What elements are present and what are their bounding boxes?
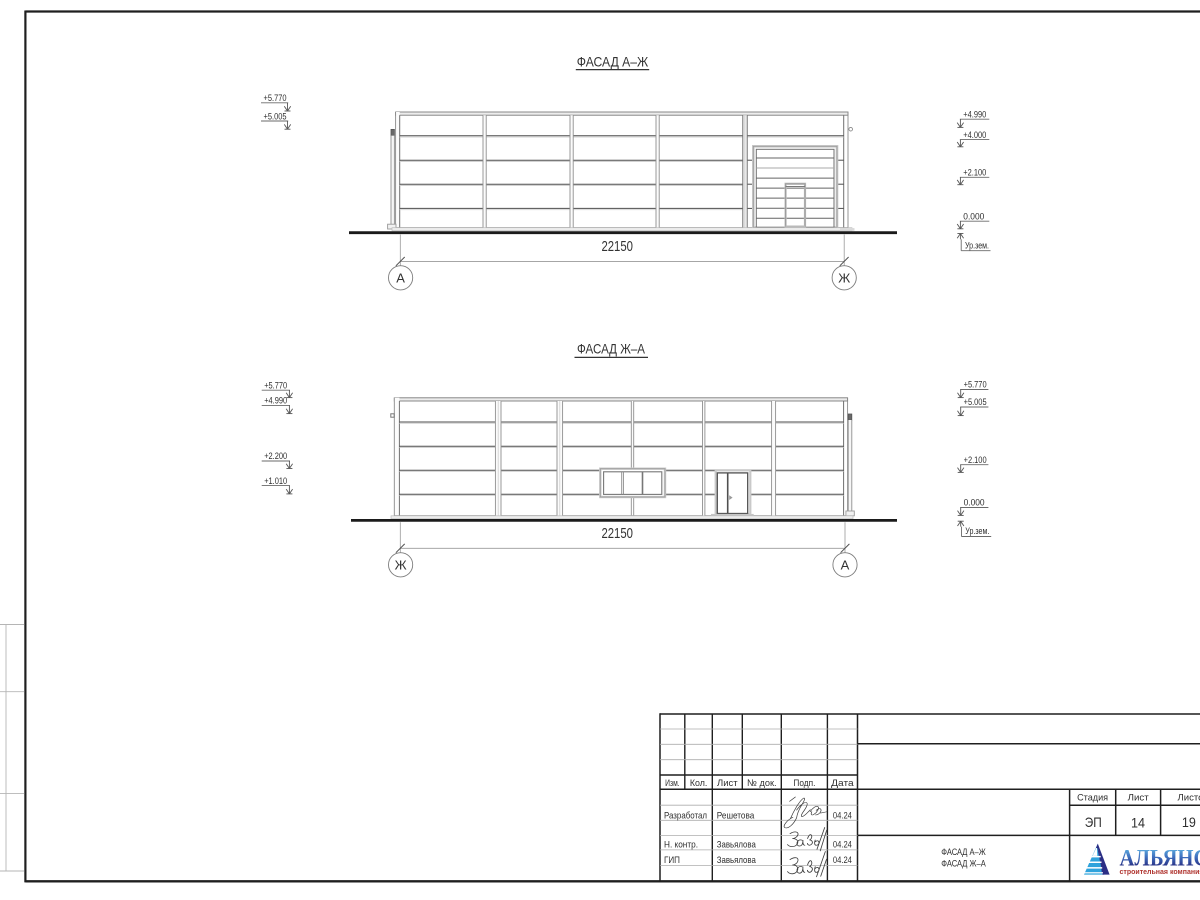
svg-text:+2.100: +2.100 bbox=[964, 455, 987, 465]
svg-text:Решетова: Решетова bbox=[717, 810, 755, 820]
svg-text:+5.005: +5.005 bbox=[964, 397, 987, 407]
svg-text:22150: 22150 bbox=[601, 525, 633, 542]
svg-text:+2.100: +2.100 bbox=[963, 168, 986, 178]
svg-text:Подп.: Подп. bbox=[793, 778, 815, 789]
svg-text:Кол.: Кол. bbox=[690, 778, 708, 789]
svg-text:№ док.: № док. bbox=[747, 778, 777, 789]
svg-text:Лист: Лист bbox=[1128, 793, 1150, 803]
svg-text:+5.770: +5.770 bbox=[264, 381, 287, 391]
svg-text:Завьялова: Завьялова bbox=[717, 855, 757, 865]
svg-text:Ур.зем.: Ур.зем. bbox=[965, 526, 989, 536]
svg-text:ЭП: ЭП bbox=[1085, 814, 1102, 830]
svg-text:+1.010: +1.010 bbox=[264, 476, 287, 486]
svg-text:+5.005: +5.005 bbox=[264, 111, 287, 121]
svg-text:ФАСАД А–Ж: ФАСАД А–Ж bbox=[577, 54, 649, 69]
svg-text:+4.990: +4.990 bbox=[963, 109, 986, 119]
svg-text:Листов: Листов bbox=[1178, 793, 1200, 803]
svg-text:А: А bbox=[841, 558, 850, 573]
svg-text:04.24: 04.24 bbox=[833, 855, 852, 865]
svg-text:0.000: 0.000 bbox=[963, 211, 984, 221]
svg-text:+5.770: +5.770 bbox=[964, 380, 987, 390]
svg-text:А: А bbox=[396, 271, 405, 286]
svg-text:Ур.зем.: Ур.зем. bbox=[965, 240, 989, 250]
svg-text:04.24: 04.24 bbox=[833, 810, 852, 820]
svg-text:0.000: 0.000 bbox=[964, 498, 985, 508]
svg-text:ФАСАД Ж–А: ФАСАД Ж–А bbox=[577, 342, 646, 357]
svg-text:+2.200: +2.200 bbox=[264, 451, 287, 461]
svg-text:Разработал: Разработал bbox=[664, 810, 707, 820]
svg-text:04.24: 04.24 bbox=[833, 840, 852, 850]
svg-text:22150: 22150 bbox=[601, 238, 633, 255]
svg-text:+5.770: +5.770 bbox=[264, 93, 287, 103]
svg-text:19: 19 bbox=[1182, 814, 1196, 830]
svg-text:Ж: Ж bbox=[838, 271, 850, 286]
svg-text:Дата: Дата bbox=[831, 778, 854, 789]
svg-text:+4.990: +4.990 bbox=[264, 396, 287, 406]
svg-text:ФАСАД А–Ж: ФАСАД А–Ж bbox=[941, 847, 986, 857]
svg-text:14: 14 bbox=[1131, 815, 1145, 831]
svg-text:+4.000: +4.000 bbox=[963, 130, 986, 140]
svg-text:Стадия: Стадия bbox=[1077, 793, 1108, 803]
svg-text:строительная компания: строительная компания bbox=[1120, 867, 1200, 876]
svg-text:ГИП: ГИП bbox=[664, 855, 680, 865]
svg-text:Ж: Ж bbox=[395, 558, 407, 573]
svg-text:Лист: Лист bbox=[717, 778, 738, 789]
svg-text:ФАСАД Ж–А: ФАСАД Ж–А bbox=[941, 859, 986, 869]
svg-text:Н. контр.: Н. контр. bbox=[664, 840, 698, 850]
svg-text:Изм.: Изм. bbox=[665, 778, 680, 789]
svg-text:Завьялова: Завьялова bbox=[717, 840, 757, 850]
